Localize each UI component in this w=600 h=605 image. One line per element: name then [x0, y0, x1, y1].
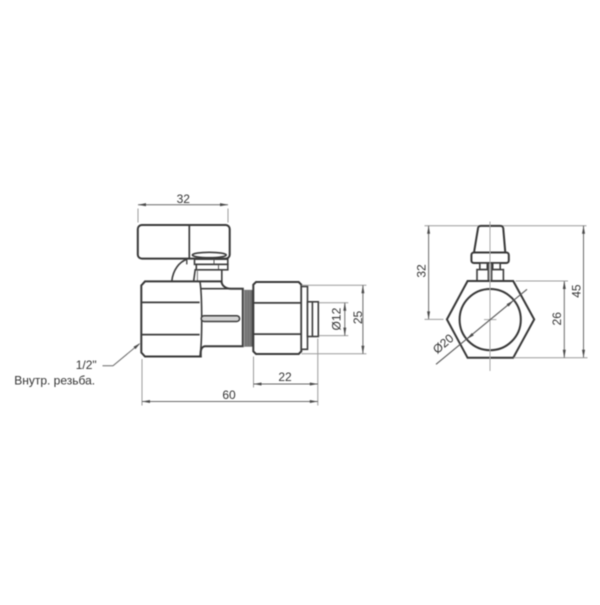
svg-text:32: 32: [414, 264, 428, 278]
svg-text:26: 26: [550, 312, 564, 326]
svg-text:Ø12: Ø12: [330, 307, 344, 330]
svg-text:25: 25: [351, 311, 365, 325]
svg-text:Внутр. резьба.: Внутр. резьба.: [14, 374, 95, 388]
svg-text:45: 45: [569, 284, 583, 298]
svg-text:32: 32: [177, 192, 191, 206]
svg-text:60: 60: [222, 388, 236, 402]
svg-text:1/2": 1/2": [76, 358, 97, 372]
svg-text:22: 22: [278, 370, 292, 384]
